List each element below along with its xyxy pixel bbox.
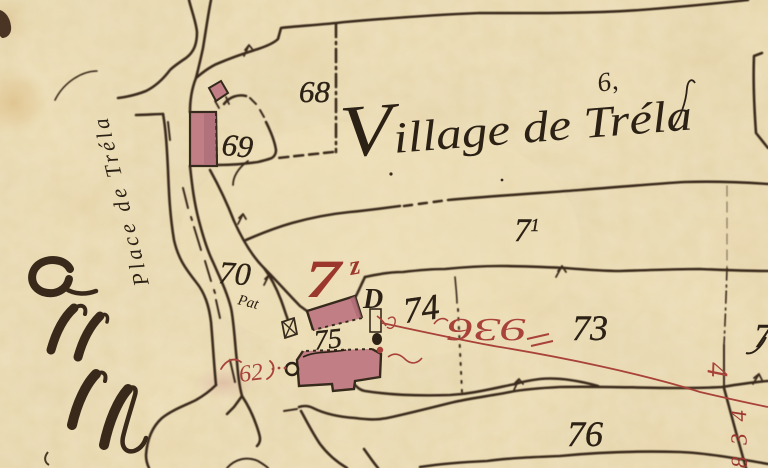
svg-text:4: 4 <box>700 362 734 378</box>
svg-text:70: 70 <box>218 254 252 292</box>
svg-text:62: 62 <box>238 359 265 388</box>
svg-text:D: D <box>362 284 383 315</box>
svg-text:834: 834 <box>726 410 752 468</box>
svg-text:7: 7 <box>305 249 344 309</box>
svg-text:68: 68 <box>299 74 331 109</box>
svg-text:76: 76 <box>567 414 603 454</box>
svg-text:74: 74 <box>401 286 442 331</box>
svg-text:936: 936 <box>446 311 527 347</box>
svg-text:73: 73 <box>572 308 608 348</box>
svg-text:69: 69 <box>220 127 254 165</box>
